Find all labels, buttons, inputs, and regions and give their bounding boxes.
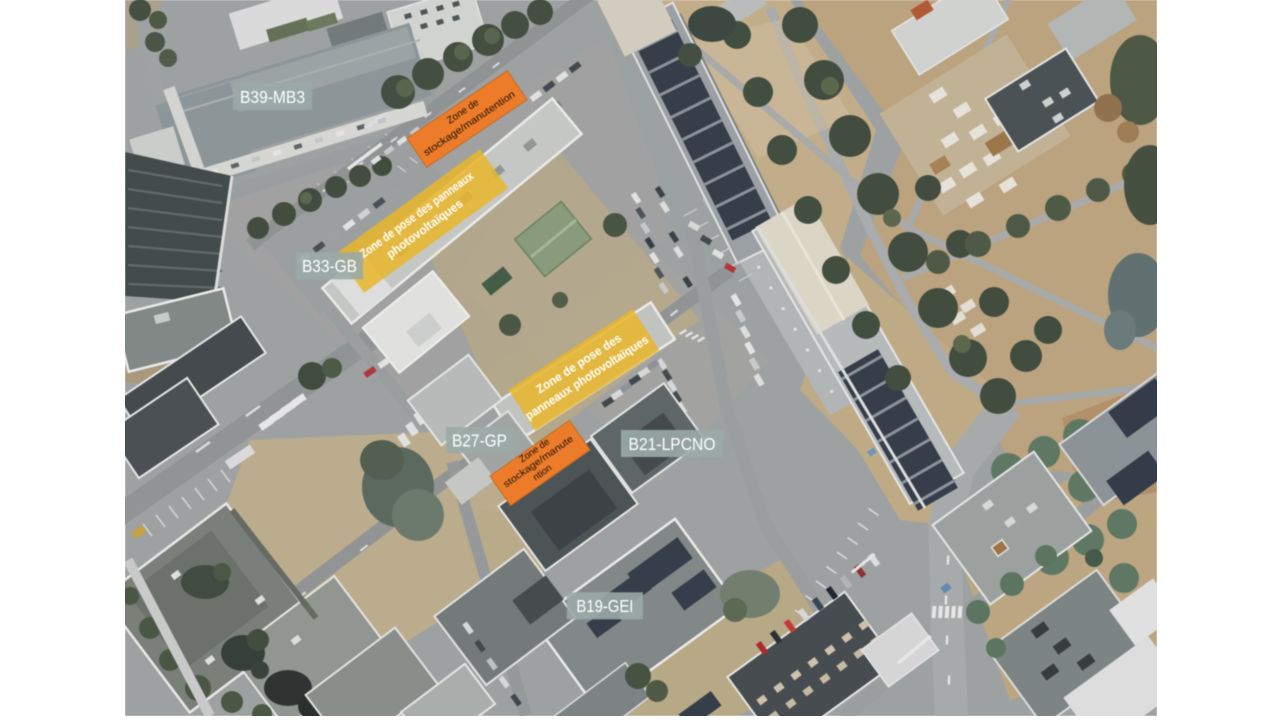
svg-text:B21-LPCNO: B21-LPCNO (629, 434, 716, 454)
svg-text:B39-MB3: B39-MB3 (240, 87, 305, 107)
svg-text:B33-GB: B33-GB (302, 256, 357, 276)
svg-text:B19-GEI: B19-GEI (576, 596, 633, 616)
svg-text:B27-GP: B27-GP (452, 430, 507, 450)
